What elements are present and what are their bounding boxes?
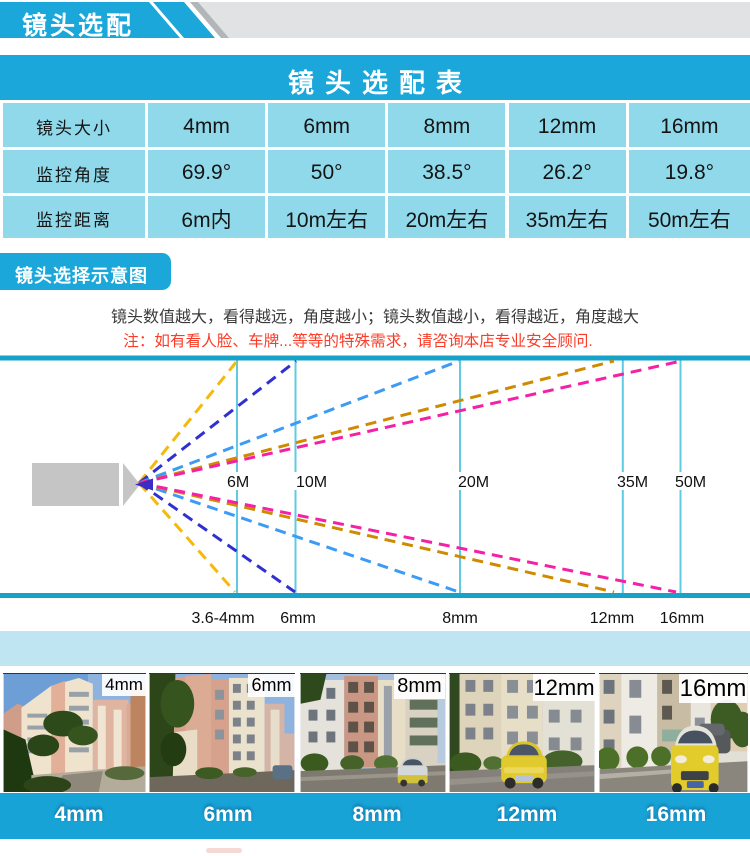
svg-text:20M: 20M: [458, 474, 489, 491]
svg-text:50M: 50M: [675, 474, 706, 491]
svg-text:6mm: 6mm: [280, 610, 316, 627]
svg-text:35M: 35M: [617, 474, 648, 491]
svg-text:3.6-4mm: 3.6-4mm: [191, 610, 254, 627]
svg-text:12mm: 12mm: [590, 610, 634, 627]
svg-text:6M: 6M: [227, 474, 249, 491]
svg-text:16mm: 16mm: [660, 610, 704, 627]
svg-text:8mm: 8mm: [442, 610, 478, 627]
svg-text:10M: 10M: [296, 474, 327, 491]
